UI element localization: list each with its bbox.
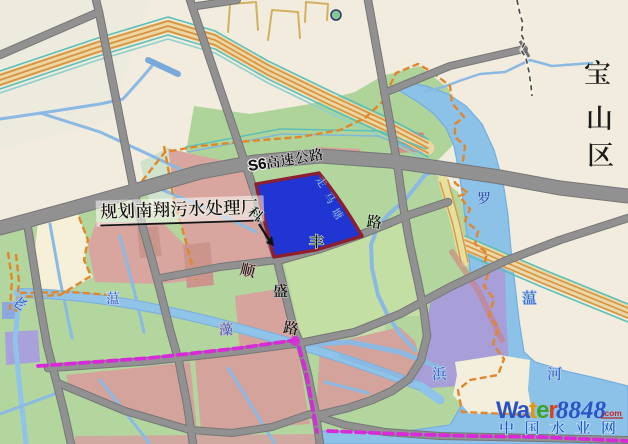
svg-text:8848: 8848 [556, 397, 607, 424]
svg-text:.com: .com [602, 408, 622, 418]
svg-text:S6: S6 [247, 155, 268, 175]
